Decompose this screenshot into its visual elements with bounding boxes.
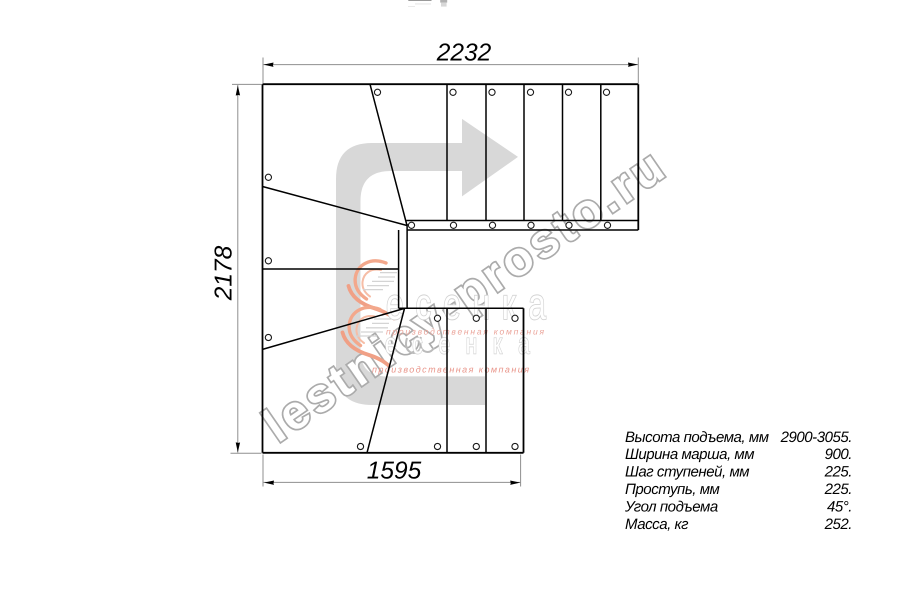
svg-text:225.: 225. bbox=[824, 481, 852, 498]
svg-text:1595: 1595 bbox=[367, 458, 422, 485]
svg-text:Шаг ступеней, мм: Шаг ступеней, мм bbox=[625, 464, 749, 481]
svg-text:производственная компания: производственная компания bbox=[372, 365, 529, 375]
svg-text:252.: 252. bbox=[824, 516, 852, 533]
svg-text:2232: 2232 bbox=[436, 40, 492, 67]
svg-text:900.: 900. bbox=[825, 446, 852, 463]
svg-text:45°.: 45°. bbox=[827, 499, 852, 516]
svg-text:Ширина марша, мм: Ширина марша, мм bbox=[625, 446, 754, 463]
svg-text:2900-3055.: 2900-3055. bbox=[780, 429, 852, 446]
svg-text:Масса, кг: Масса, кг bbox=[625, 516, 689, 533]
svg-text:Высота подъема, мм: Высота подъема, мм bbox=[625, 429, 769, 446]
svg-text:2178: 2178 bbox=[211, 245, 238, 301]
svg-text:225.: 225. bbox=[824, 464, 852, 481]
svg-text:Проступь, мм: Проступь, мм bbox=[625, 481, 720, 498]
svg-text:Угол подъема: Угол подъема bbox=[624, 499, 718, 516]
